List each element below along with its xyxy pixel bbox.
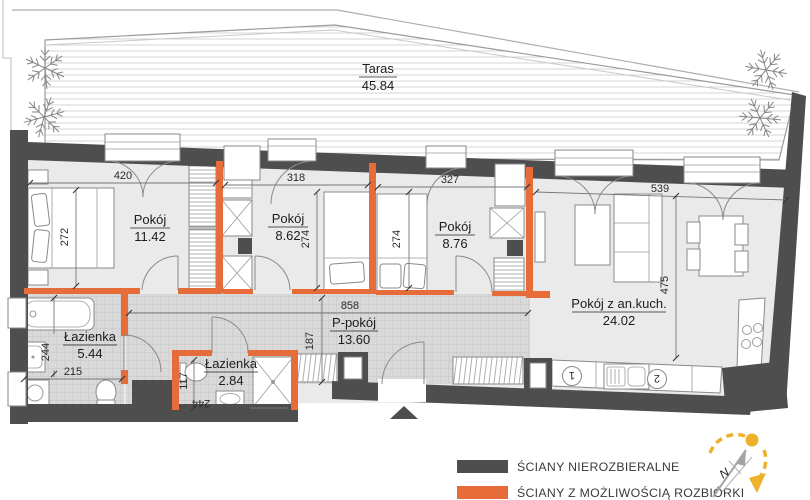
wall-bath1-top [24,288,140,294]
armchair [575,205,610,265]
nightstand [28,270,48,285]
bathtub [20,298,94,330]
svg-text:2.84: 2.84 [218,373,243,388]
svg-text:244: 244 [192,397,210,409]
chair [687,222,700,243]
wardrobe [189,163,216,227]
appliance-2-label: 2 [654,372,661,384]
counter-side [737,298,765,372]
tv [535,212,545,262]
legend-swatch-removable [457,486,508,499]
legend-label-fixed: ŚCIANY NIEROZBIERALNE [517,459,680,474]
shaft [495,164,525,206]
sun-path-arrow-icon [749,473,766,493]
svg-text:Łazienka: Łazienka [205,356,258,371]
window-room3 [426,146,466,168]
svg-text:327: 327 [441,174,459,186]
duct [507,240,523,256]
balcony-door-2 [555,150,633,176]
sofa [614,194,662,282]
floor-plan-page: 1 2 [0,0,810,500]
svg-text:P-pokój: P-pokój [332,315,376,330]
label-pokoj-1: Pokój 11.42 [130,212,170,244]
svg-text:274: 274 [391,230,403,248]
legend-label-removable: ŚCIANY Z MOŻLIWOŚCIĄ ROZBIÓRKI [517,485,744,500]
column-niche [344,357,362,379]
wardrobe [189,229,216,290]
chair [735,224,748,245]
wardrobe [453,357,523,384]
wall-room2-bottom-a [223,289,253,294]
balcony-door-3 [684,157,760,183]
appliance-1-label: 1 [569,369,576,381]
wall-bottom-left [10,404,298,422]
svg-text:8.76: 8.76 [442,236,467,251]
svg-text:24.02: 24.02 [603,313,636,328]
pillow [380,264,401,288]
svg-text:Pokój z an.kuch.: Pokój z an.kuch. [571,296,666,311]
building-edge [3,0,11,131]
pillow [403,263,426,289]
shaft [224,146,260,180]
svg-text:Łazienka: Łazienka [64,329,117,344]
balcony-door-1 [105,134,180,161]
wall-room1-door-side [178,288,222,294]
svg-text:13.60: 13.60 [338,332,371,347]
compass-needle-head [737,450,746,466]
svg-text:420: 420 [114,170,132,182]
duct [238,238,252,254]
svg-text:Pokój: Pokój [134,212,167,227]
pillow [31,229,49,262]
wall-room2-bottom-b [292,289,370,294]
wall-stub [132,380,175,406]
svg-text:Pokój: Pokój [439,219,472,234]
entrance-opening [378,379,426,402]
wall-r1-r2 [216,161,223,293]
legend-swatch-fixed [457,460,508,473]
floor-plan-svg: 1 2 [0,0,810,500]
wardrobe [494,258,524,292]
svg-text:Taras: Taras [362,61,394,76]
svg-text:215: 215 [64,366,82,378]
svg-text:539: 539 [651,183,669,195]
chair [687,249,700,270]
wall-niche [8,298,26,328]
pillow [31,193,50,227]
svg-text:272: 272 [59,228,71,246]
wall-room3-bottom-b [492,291,530,296]
svg-text:244: 244 [40,343,52,361]
chair [735,251,748,272]
wall-room3-bottom-a [376,290,454,295]
svg-text:Pokój: Pokój [272,211,305,226]
wall-niche [8,372,26,406]
svg-text:187: 187 [304,332,316,350]
svg-text:117: 117 [178,372,190,390]
pillow [329,262,364,284]
svg-text:5.44: 5.44 [77,346,102,361]
svg-text:475: 475 [659,276,671,294]
svg-text:45.84: 45.84 [362,78,395,93]
svg-text:8.62: 8.62 [275,228,300,243]
legend: ŚCIANY NIEROZBIERALNE ŚCIANY Z MOŻLIWOŚC… [457,459,744,500]
sun-path-arc [710,435,745,453]
wall-bath2-right [291,350,298,410]
wardrobe [297,354,337,382]
svg-text:11.42: 11.42 [134,229,166,244]
svg-text:318: 318 [287,172,305,184]
sun-icon [746,434,759,447]
entrance-arrow-icon [390,406,418,419]
label-taras: Taras 45.84 [359,61,397,93]
svg-text:274: 274 [300,230,312,248]
svg-text:858: 858 [341,300,359,312]
window-room2 [268,139,316,161]
hall-living-door [530,363,546,388]
